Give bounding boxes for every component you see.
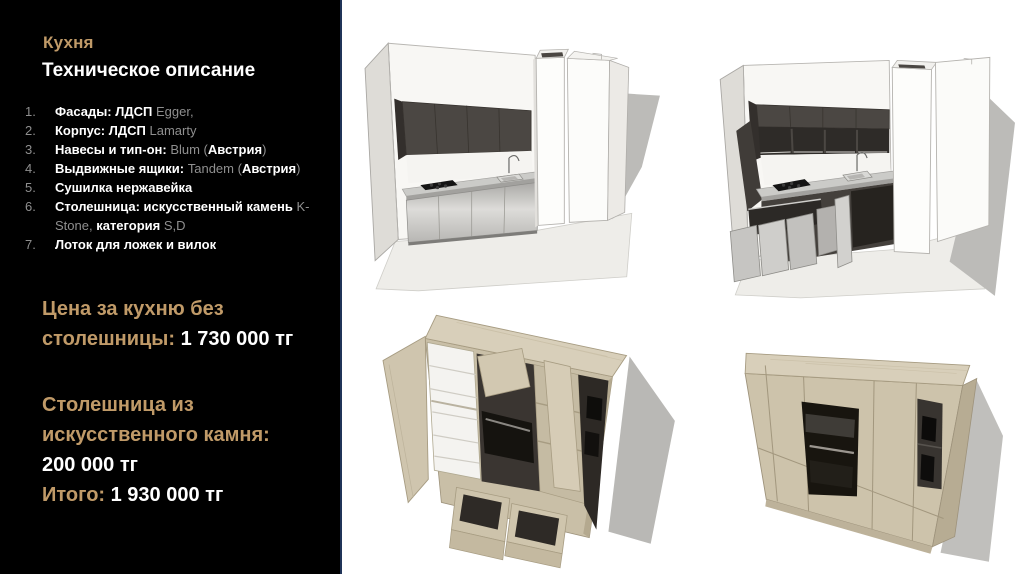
spec-list: 1. Фасады: ЛДСП Egger, 2. Корпус: ЛДСП L…: [25, 102, 321, 254]
render-cabinet-closed-svg: [725, 325, 1005, 574]
appliance: [921, 416, 936, 442]
wall-column: [936, 57, 990, 241]
middle-shelves: [534, 361, 584, 504]
spec-item: 7. Лоток для ложек и вилок: [25, 235, 321, 254]
spec-number: 6.: [25, 197, 55, 235]
spec-item: 1. Фасады: ЛДСП Egger,: [25, 102, 321, 121]
price-countertop: Столешница из искусственного камня: 200 …: [42, 390, 296, 480]
appliance: [586, 396, 602, 421]
shadow: [608, 357, 674, 544]
tall-cabinet: [533, 49, 568, 227]
render-kitchen-open: [690, 12, 1017, 302]
white-shelf-column: [427, 342, 480, 479]
spec-number: 3.: [25, 140, 55, 159]
oven-niche: [802, 402, 859, 497]
page-title: Кухня: [43, 33, 94, 53]
spec-item: 4. Выдвижные ящики: Tandem (Австрия): [25, 159, 321, 178]
wall-column: [567, 51, 628, 222]
open-left-door: [383, 336, 428, 502]
render-kitchen-closed-svg: [358, 26, 670, 298]
price-total: Итого: 1 930 000 тг: [42, 480, 296, 510]
price-kitchen: Цена за кухню без столешницы: 1 730 000 …: [42, 294, 296, 354]
spec-number: 2.: [25, 121, 55, 140]
render-kitchen-open-svg: [690, 12, 1017, 302]
render-cabinet-open-svg: [381, 290, 698, 572]
spec-item: 3. Навесы и тип-он: Blum (Австрия): [25, 140, 321, 159]
price-countertop-value: 200 000 тг: [42, 454, 138, 476]
tall-cabinet: [892, 60, 936, 253]
spec-number: 5.: [25, 178, 55, 197]
appliance: [920, 454, 934, 482]
render-cabinet-open: [381, 290, 698, 572]
spec-item: 2. Корпус: ЛДСП Lamarty: [25, 121, 321, 140]
price-total-value: 1 930 000 тг: [111, 484, 224, 506]
render-kitchen-closed: [358, 26, 670, 298]
spec-number: 4.: [25, 159, 55, 178]
spec-number: 7.: [25, 235, 55, 254]
price-total-label: Итого:: [42, 484, 111, 506]
render-cabinet-closed: [725, 325, 1005, 574]
spec-number: 1.: [25, 102, 55, 121]
price-countertop-label: Столешница из искусственного камня:: [42, 394, 270, 446]
open-shelf-niche: [917, 399, 942, 490]
upper-cabinets-open: [748, 101, 889, 161]
open-door: [835, 195, 852, 267]
spec-item: 6. Столешница: искусственный камень K-St…: [25, 197, 321, 235]
oven-compartment: [477, 348, 540, 491]
appliance: [584, 431, 599, 457]
spec-item: 5. Сушилка нержавейка: [25, 178, 321, 197]
price-kitchen-value: 1 730 000 тг: [181, 328, 294, 350]
description-panel: Кухня Техническое описание 1. Фасады: ЛД…: [0, 0, 342, 574]
page-subtitle: Техническое описание: [42, 60, 255, 82]
presentation-slide: Кухня Техническое описание 1. Фасады: ЛД…: [0, 0, 1024, 574]
